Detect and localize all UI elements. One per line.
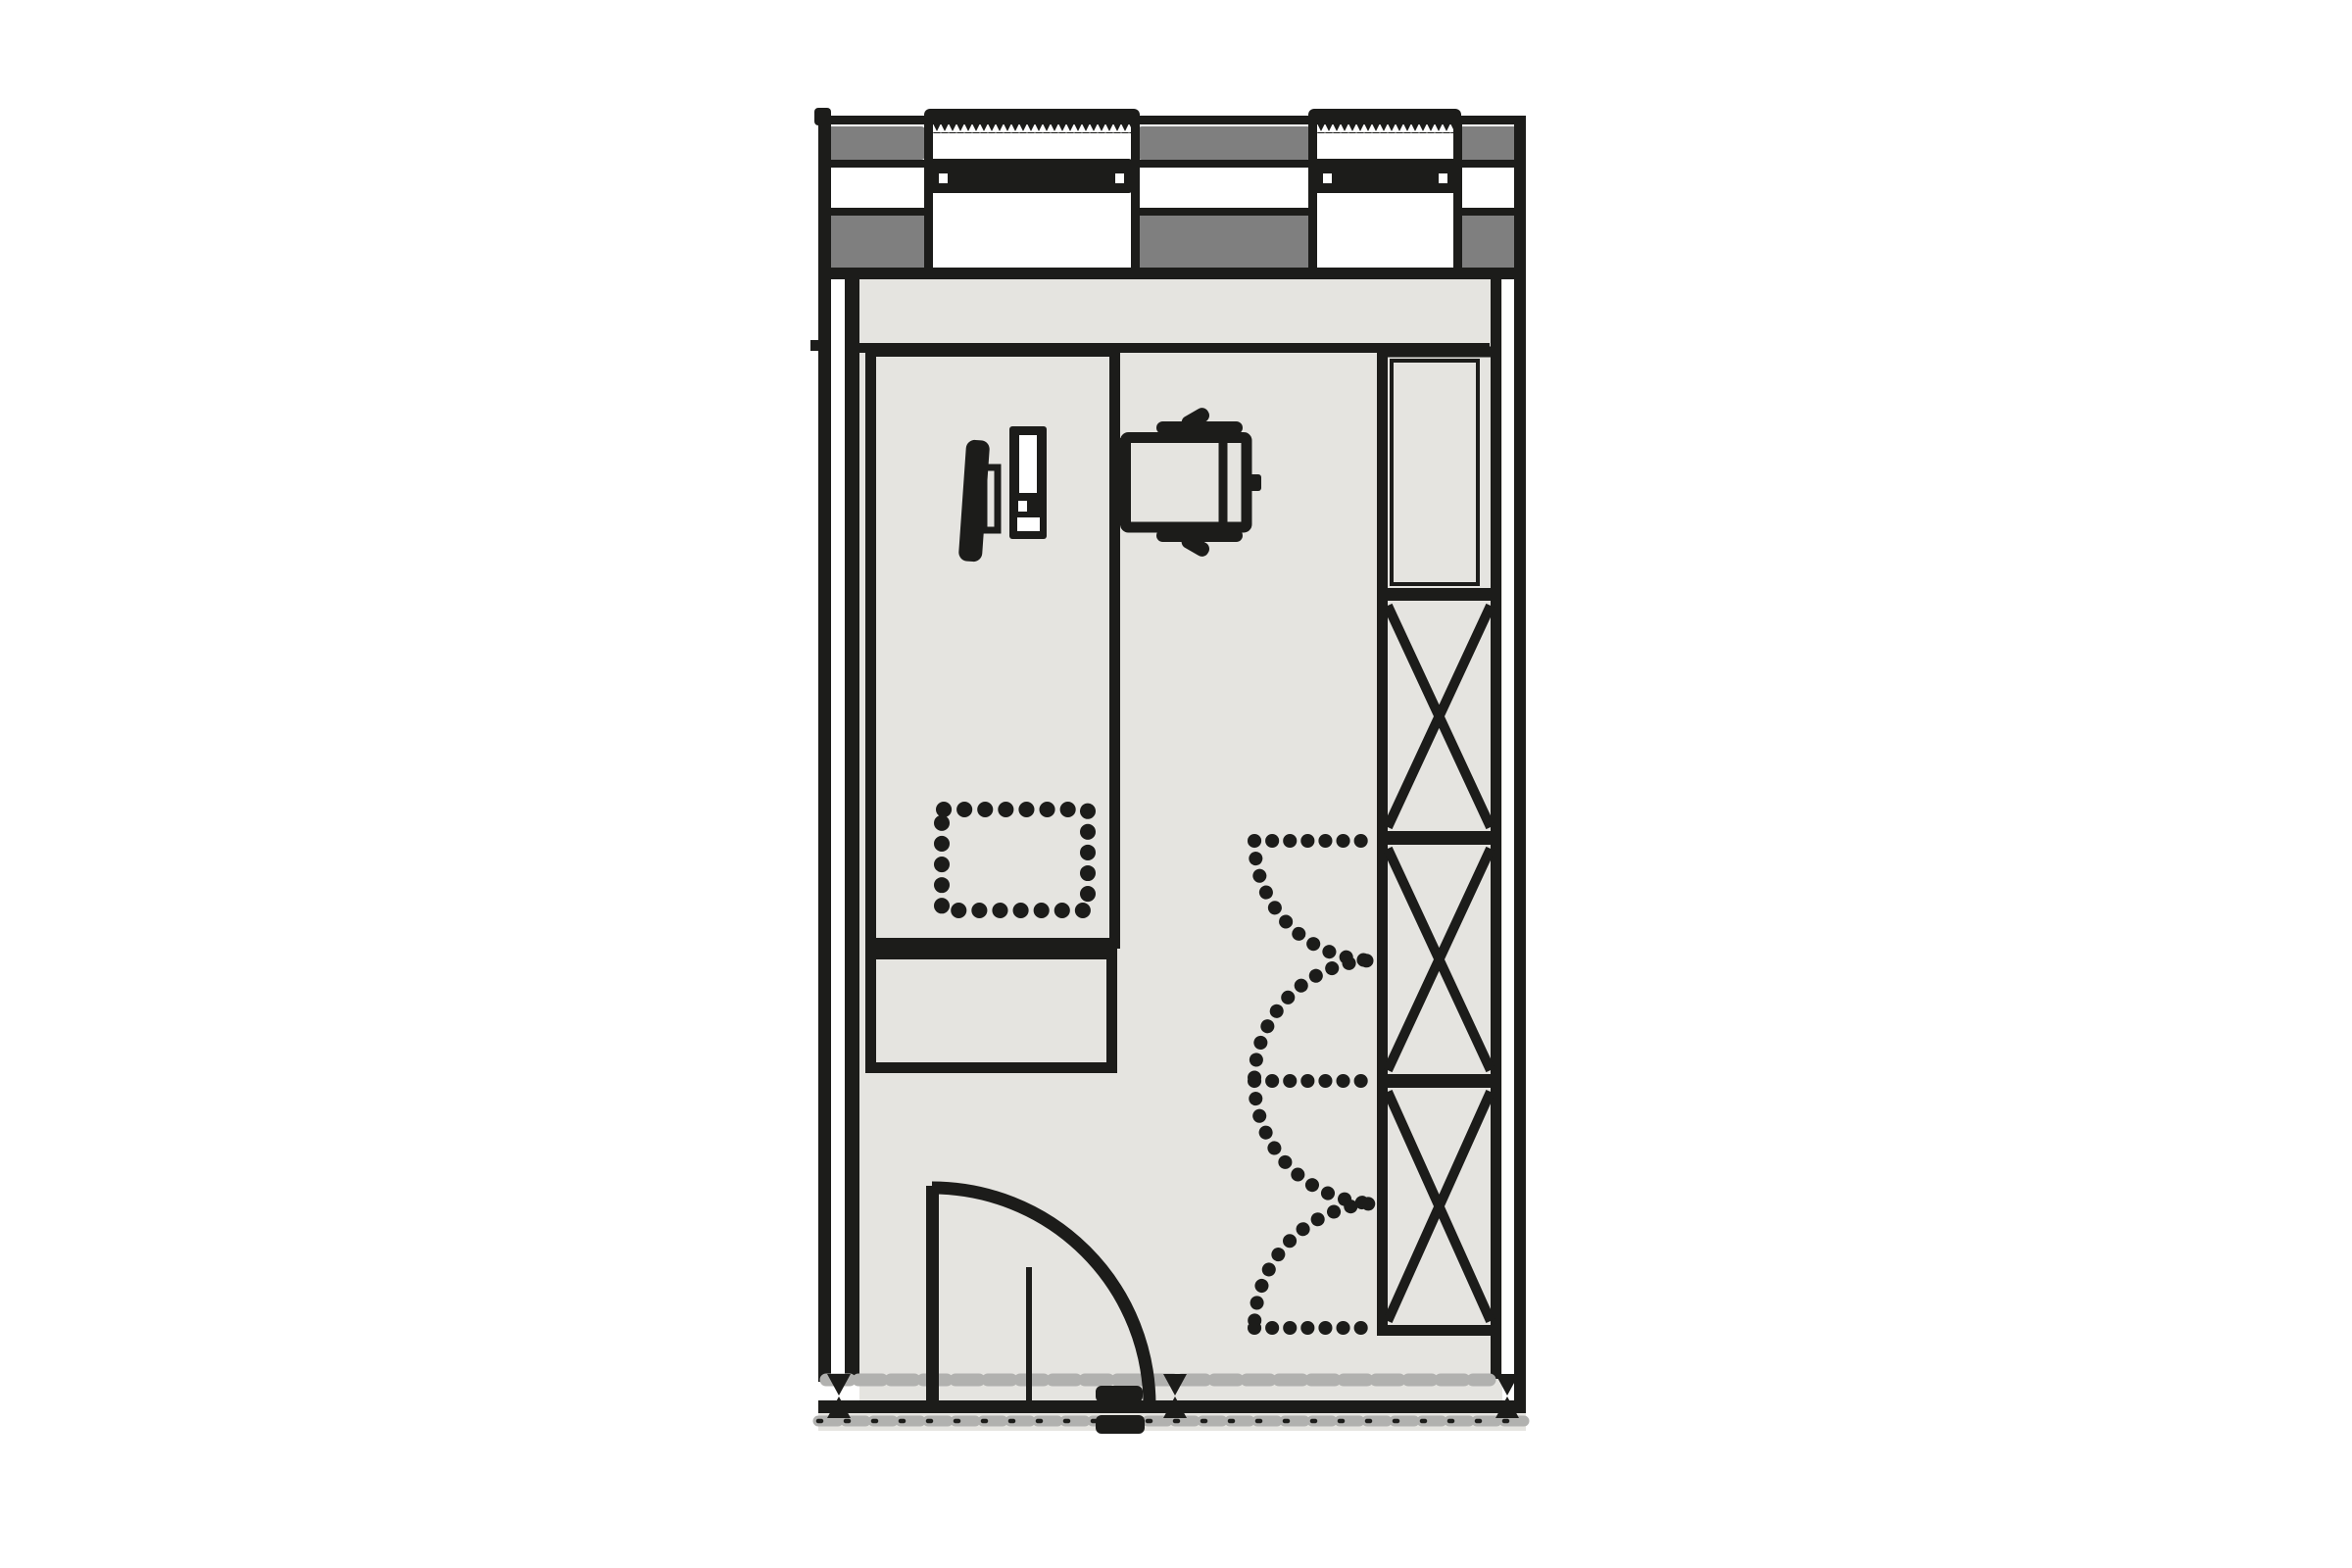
wardrobe-divider-3 (1377, 1074, 1501, 1088)
door-frame-line (1026, 1267, 1032, 1413)
pier-left-gray-upper (826, 126, 925, 160)
pier-left-gray-lower (826, 216, 925, 268)
floor-plan-drawing (0, 0, 2352, 1568)
pc-tower-button (1018, 501, 1027, 512)
chair-adjust-lever (1247, 474, 1261, 491)
pier-right-gray-lower (1459, 216, 1520, 268)
right-wall (1514, 124, 1526, 1413)
stop-block-upper (1096, 1386, 1143, 1402)
pier-right-gray-upper (1459, 126, 1520, 160)
shaft-line-lower (1491, 1334, 1501, 1379)
floor-plan-page (0, 0, 2352, 1568)
window-left-glazing (933, 124, 1131, 268)
window-left-hinge-right (1115, 173, 1124, 183)
window-right-hinge-right (1439, 173, 1447, 183)
window-right-head-cap (1308, 109, 1461, 125)
desk (871, 352, 1115, 944)
pc-tower (1009, 426, 1047, 539)
window-right-serration (1317, 124, 1453, 133)
pier-left-line-a (819, 160, 929, 168)
chair-tab-top (1115, 438, 1124, 450)
facade-inner-line (819, 268, 1526, 279)
pier-middle-line-a (1135, 160, 1313, 168)
chair-seat (1126, 438, 1248, 528)
chair-armrest-top (1160, 425, 1240, 431)
window-left-frame-band (929, 159, 1132, 193)
pier-middle-line-b (1135, 208, 1313, 216)
window-left-jamb-right (1131, 124, 1140, 268)
left-wall-tick (810, 340, 819, 351)
window-right-jamb-left (1308, 124, 1317, 268)
window-left-hinge-left (939, 173, 948, 183)
window-right-jamb-right (1453, 124, 1462, 268)
wardrobe-divider-2 (1377, 831, 1501, 845)
chair-tab-bottom (1115, 514, 1124, 525)
pc-tower-front-panel (1019, 435, 1037, 493)
window-right-hinge-left (1323, 173, 1332, 183)
shaft-line-upper (1491, 279, 1501, 352)
pier-left-line-b (819, 208, 929, 216)
desk-group (871, 352, 1115, 944)
window-right-glazing (1317, 124, 1453, 268)
sideboard (871, 955, 1112, 1068)
window-left (924, 124, 1140, 268)
stop-block-lower (1096, 1415, 1145, 1434)
left-wall-outer (818, 116, 831, 1382)
window-right-frame-band (1313, 159, 1457, 193)
window-left-jamb-left (924, 124, 933, 268)
window-facade-wall (814, 108, 1526, 279)
pc-tower-drive-slot (1017, 517, 1040, 531)
left-wall-inner (845, 279, 859, 1379)
chair-armrest-bottom (1160, 533, 1240, 539)
window-right (1308, 124, 1462, 268)
window-left-head-cap (924, 109, 1140, 125)
pier-middle-gray-lower (1138, 216, 1311, 268)
pier-middle-gray-upper (1138, 126, 1311, 160)
door-leaf (926, 1186, 939, 1413)
wardrobe-divider-1 (1377, 588, 1501, 601)
window-left-serration (933, 124, 1131, 133)
